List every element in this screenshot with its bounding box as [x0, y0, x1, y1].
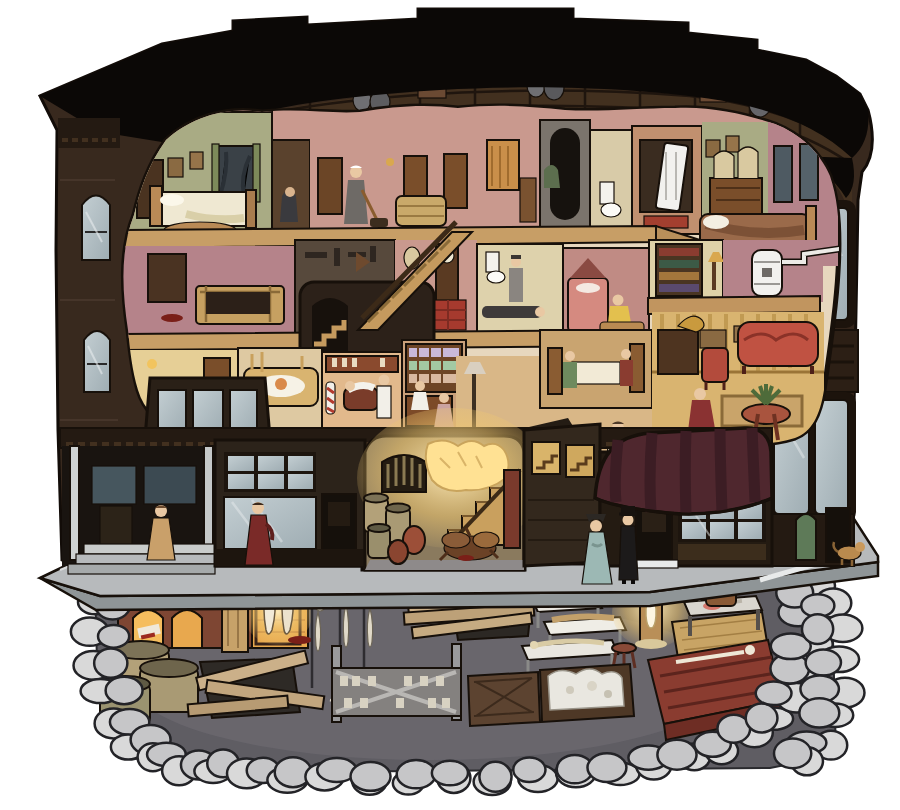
foundation-stone: [351, 762, 391, 791]
wall-sconce: [386, 158, 394, 166]
food-dish: [275, 378, 287, 390]
man-hat: [511, 255, 521, 259]
corner-window-1: [774, 146, 792, 202]
alley-floor: [365, 560, 524, 570]
porch-steps: [68, 544, 215, 574]
white-heater: [752, 250, 782, 303]
f1-barber-shop: [322, 352, 402, 428]
sideboard: [148, 254, 186, 302]
foundation-stone: [746, 704, 778, 733]
customer-head: [345, 381, 355, 391]
porch-window-1: [92, 466, 136, 504]
frame-4: [726, 136, 739, 152]
f3-maid-hall: [310, 120, 540, 234]
picture-frame-2: [190, 152, 203, 169]
stair-window-2: [566, 445, 594, 477]
barber-coat: [377, 386, 391, 418]
corner-porch: [62, 446, 215, 574]
arched-green-window: [796, 514, 816, 560]
remains-1: [552, 616, 614, 620]
corner-window-2: [800, 144, 818, 200]
leaning-door: [504, 470, 520, 548]
porch-post-1: [70, 446, 79, 560]
crate-quicklime: [540, 664, 634, 722]
shop-shelves: [406, 344, 462, 392]
foundation-stone: [479, 762, 511, 792]
parlor-frame-1: [700, 330, 726, 348]
quicklime-pile: [548, 669, 624, 710]
booth-table: [572, 362, 620, 384]
left-arch-window-2: [84, 331, 110, 392]
foundation-stone: [756, 682, 792, 706]
booth-bench-1: [548, 348, 562, 394]
f2-library: [649, 240, 724, 302]
barred-grate: [382, 455, 426, 492]
cutaway-illustration: [0, 0, 900, 810]
foundation-stone: [657, 740, 696, 770]
diner-1-head: [565, 351, 575, 361]
blood-stain-1: [288, 636, 312, 644]
bay-pane-1: [158, 390, 186, 432]
door-step-2: [632, 560, 678, 568]
crate-lid: [468, 672, 540, 726]
storefront-base: [215, 549, 365, 566]
open-trunk: [196, 286, 284, 324]
bookshelf: [656, 244, 702, 296]
remains-skull: [530, 641, 538, 649]
foundation-stone: [587, 753, 626, 782]
foundation-stone: [432, 761, 468, 786]
sweeper-head: [370, 218, 388, 227]
wall-lamp: [147, 359, 157, 369]
striped-awning: [595, 428, 772, 514]
diner-2-head: [621, 349, 631, 359]
foundation-stone: [397, 760, 436, 788]
barber-head: [379, 375, 390, 386]
diner-2: [620, 360, 633, 386]
blood-smear: [161, 314, 183, 322]
foundation-stone: [806, 649, 841, 675]
footboard: [246, 190, 256, 228]
foundation-stone: [94, 648, 127, 677]
bed-pillow: [703, 215, 729, 229]
stair-opening-upper: [312, 298, 348, 352]
f2-stove-room: [723, 240, 823, 303]
hall-chair: [520, 178, 536, 222]
foundation-stone: [799, 698, 839, 727]
foundation-stone: [106, 677, 143, 704]
illustration-stage: [0, 0, 900, 810]
f3-vault-room: [632, 126, 702, 234]
chest-skull: [745, 645, 755, 655]
glowing-rubble: [426, 440, 509, 490]
f3-chute-room: [540, 120, 590, 234]
wicker-trunk: [396, 196, 446, 226]
storefront-block: [215, 440, 365, 566]
foundation-stone: [774, 739, 811, 769]
service-alley: [357, 408, 547, 570]
porch-window-2: [144, 466, 196, 504]
pillow: [160, 194, 184, 206]
bay-pane-3: [230, 390, 257, 432]
f2-bathroom: [477, 244, 563, 338]
red-sofa: [738, 322, 818, 374]
left-arch-window-1: [82, 196, 110, 261]
left-cornice: [58, 118, 120, 148]
restaurant-booth: [540, 330, 652, 408]
kiln-arch-right: [172, 610, 202, 648]
parlor-floor: [648, 296, 820, 314]
f3-dark-closet: [272, 140, 310, 234]
foundation-stone: [98, 625, 129, 648]
hall-door-3: [444, 154, 467, 208]
scraps: [458, 555, 474, 561]
f2-trunk-room: [120, 246, 295, 338]
headboard: [150, 186, 162, 226]
bay-pane-2: [193, 390, 223, 432]
heater-door: [762, 268, 772, 277]
transom-1: [224, 452, 316, 492]
diner-1: [563, 362, 577, 388]
barber-pole: [326, 382, 335, 414]
f3-bathroom: [590, 130, 632, 234]
storefront-bay-1: [224, 452, 316, 549]
window-base-panel: [678, 544, 766, 560]
trunk-interior: [206, 292, 270, 314]
foundation-stone: [802, 614, 833, 644]
foundation-stone: [513, 758, 545, 782]
body-on-floor: [482, 306, 545, 318]
building: [40, 9, 872, 574]
picture-frame-1: [168, 158, 183, 177]
wax-pool: [635, 639, 667, 649]
clay-jug-2: [388, 540, 408, 564]
standing-man: [509, 255, 523, 302]
hall-door-1: [318, 158, 342, 214]
figure-head: [285, 187, 295, 197]
